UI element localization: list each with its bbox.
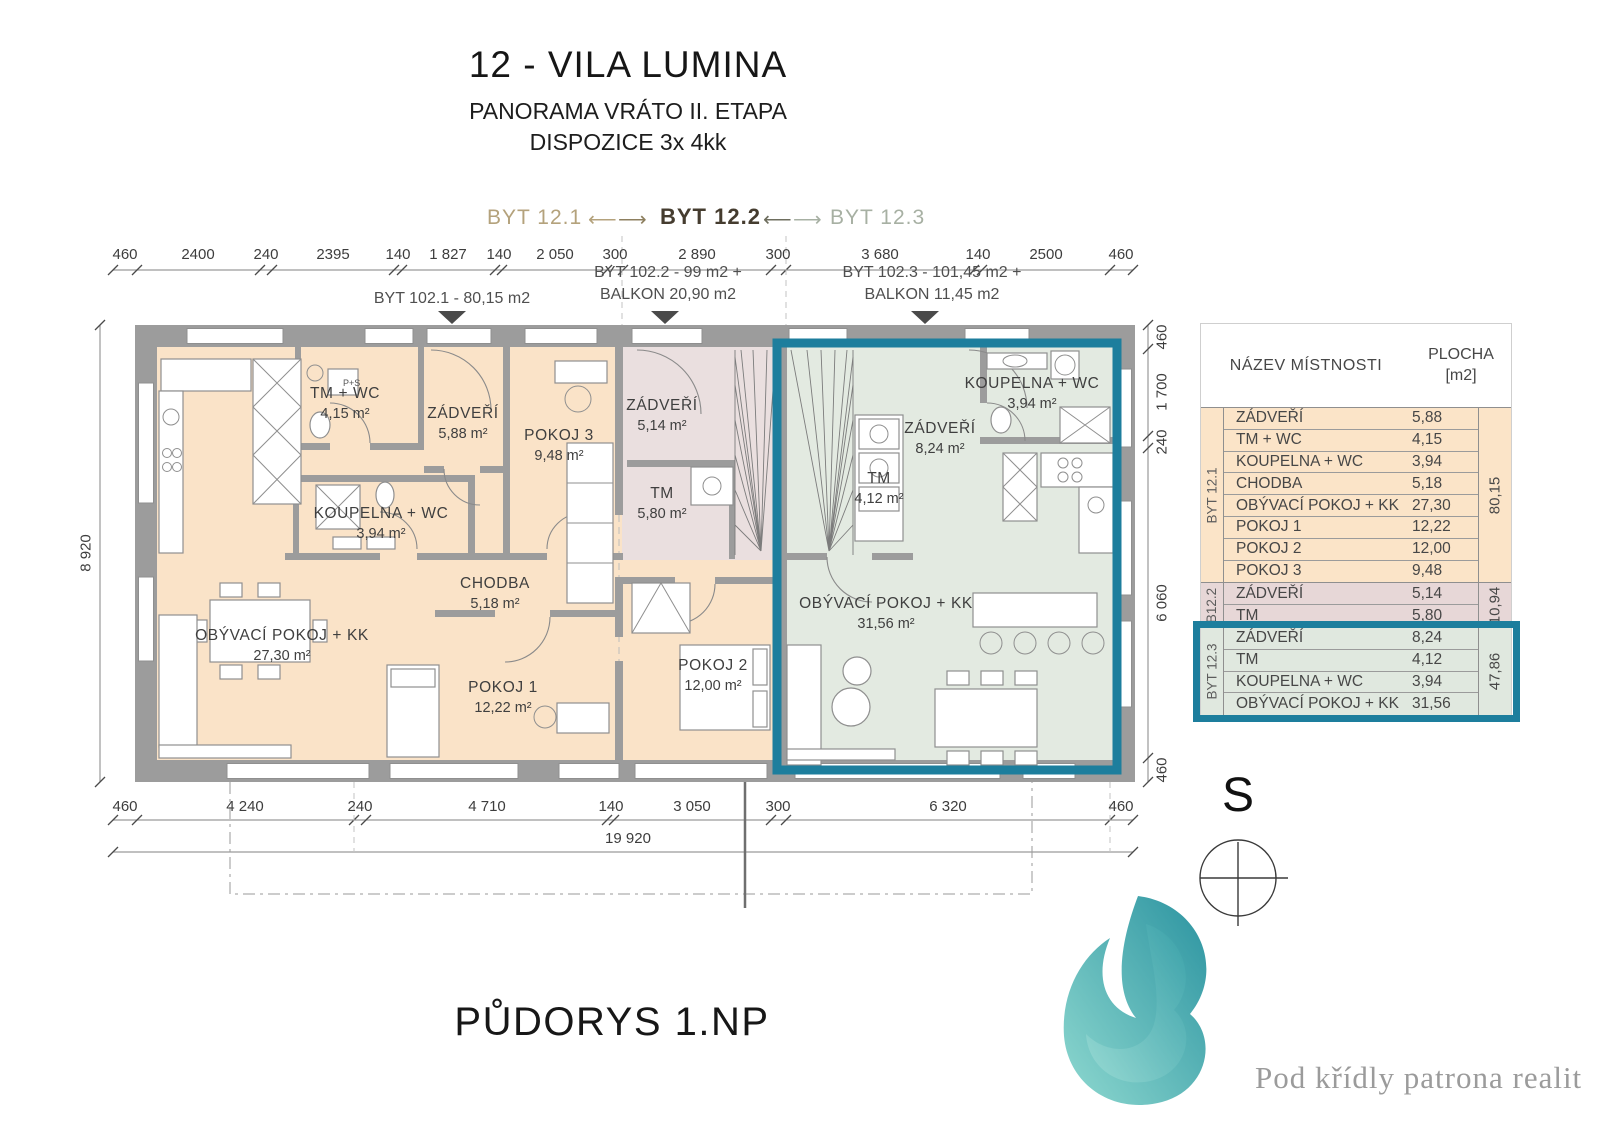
agency-tagline: Pod křídly patrona realit [1255, 1060, 1582, 1096]
room-label-tm-3: TM4,12 m² [854, 468, 903, 510]
dimension-label: 4 710 [468, 798, 506, 815]
page-disposition: DISPOZICE 3x 4kk [0, 129, 1256, 156]
unit-label-12-2: BYT 12.2 [660, 204, 761, 230]
dimension-label: 1 827 [429, 246, 467, 263]
table-header-name: NÁZEV MÍSTNOSTI [1201, 324, 1411, 407]
room-label-zadveri-2: ZÁDVEŘÍ5,14 m² [626, 395, 697, 437]
arrow-left-icon: ⟵ [588, 207, 617, 232]
arrow-right-icon: ⟶ [618, 207, 647, 232]
table-row: ZÁDVEŘÍ5,14 [1224, 583, 1478, 605]
table-row: ZÁDVEŘÍ8,24 [1224, 628, 1478, 650]
table-row: OBÝVACÍ POKOJ + KK31,56 [1224, 693, 1478, 715]
dimension-label: 2 890 [678, 246, 716, 263]
table-row: POKOJ 112,22 [1224, 517, 1478, 539]
table-group-b12-2: B12.2 ZÁDVEŘÍ5,14 TM5,80 10,94 [1201, 583, 1511, 628]
table-row: OBÝVACÍ POKOJ + KK27,30 [1224, 495, 1478, 517]
dimension-label: 460 [1154, 757, 1171, 782]
dimension-label: 2400 [181, 246, 214, 263]
floorplan-drawing: P+S TM + WC4,15 m² ZÁDVEŘÍ5,88 m² POKOJ … [135, 325, 1135, 782]
dimension-total-label: 19 920 [605, 830, 651, 847]
table-row: CHODBA5,18 [1224, 473, 1478, 495]
room-label-zadveri-3: ZÁDVEŘÍ8,24 m² [904, 418, 975, 460]
table-row: KOUPELNA + WC3,94 [1224, 452, 1478, 474]
dimension-label: 460 [1108, 246, 1133, 263]
room-label-pokoj-1: POKOJ 112,22 m² [468, 677, 538, 719]
dimension-label: 240 [253, 246, 278, 263]
table-row: ZÁDVEŘÍ5,88 [1224, 408, 1478, 430]
dimension-label: 1 700 [1154, 373, 1171, 411]
dimension-label: 460 [1154, 324, 1171, 349]
dimension-label: 300 [602, 246, 627, 263]
dimension-label: 460 [1108, 798, 1133, 815]
header: 12 - VILA LUMINA PANORAMA VRÁTO II. ETAP… [0, 44, 1256, 156]
group-tab: B12.2 [1201, 583, 1224, 627]
table-row: KOUPELNA + WC3,94 [1224, 672, 1478, 694]
room-label-chodba: CHODBA5,18 m² [460, 573, 530, 615]
unit-label-12-1: BYT 12.1 [487, 206, 582, 230]
entry-arrow-icon [651, 311, 679, 324]
entry-arrow-icon [438, 311, 466, 324]
unit-label-12-3: BYT 12.3 [830, 206, 925, 230]
page-subtitle: PANORAMA VRÁTO II. ETAPA [0, 98, 1256, 125]
room-label-obyvaci-1: OBÝVACÍ POKOJ + KK27,30 m² [195, 625, 369, 667]
dimension-label: 240 [347, 798, 372, 815]
dimension-label: 460 [112, 246, 137, 263]
room-label-tm-2: TM5,80 m² [637, 483, 686, 525]
dimension-label: 240 [1154, 429, 1171, 454]
dimension-label: 140 [385, 246, 410, 263]
dimension-label: 140 [965, 246, 990, 263]
table-row: TM5,80 [1224, 605, 1478, 627]
entry-arrow-icon [911, 311, 939, 324]
floorplan-sheet: 12 - VILA LUMINA PANORAMA VRÁTO II. ETAP… [0, 0, 1600, 1131]
group-total: 80,15 [1478, 408, 1511, 582]
room-label-obyvaci-3: OBÝVACÍ POKOJ + KK31,56 m² [799, 593, 973, 635]
room-area-table: NÁZEV MÍSTNOSTI PLOCHA [m2] BYT 12.1 ZÁD… [1200, 323, 1512, 717]
dimension-label: 2 050 [536, 246, 574, 263]
table-row: POKOJ 39,48 [1224, 561, 1478, 583]
dimension-total-label: 8 920 [78, 534, 95, 572]
room-label-koupelna-3: KOUPELNA + WC3,94 m² [965, 373, 1100, 415]
room-label-tm-wc: TM + WC4,15 m² [310, 383, 380, 425]
group-total: 10,94 [1478, 583, 1511, 627]
room-label-koupelna-1: KOUPELNA + WC3,94 m² [314, 503, 449, 545]
plan-level-title: PŮDORYS 1.NP [454, 1000, 769, 1045]
dimension-label: 300 [765, 246, 790, 263]
table-group-byt-12-3: BYT 12.3 ZÁDVEŘÍ8,24 TM4,12 KOUPELNA + W… [1201, 628, 1511, 716]
dimension-label: 6 060 [1154, 584, 1171, 622]
group-tab: BYT 12.1 [1201, 408, 1224, 582]
page-title: 12 - VILA LUMINA [0, 44, 1256, 86]
compass-north-label: S [1222, 768, 1254, 823]
dimension-label: 2500 [1029, 246, 1062, 263]
group-total: 47,86 [1478, 628, 1511, 715]
table-row: TM4,12 [1224, 650, 1478, 672]
dimension-label: 2395 [316, 246, 349, 263]
group-tab: BYT 12.3 [1201, 628, 1224, 715]
table-header-area: PLOCHA [m2] [1411, 324, 1511, 407]
dimension-label: 6 320 [929, 798, 967, 815]
dimension-label: 3 050 [673, 798, 711, 815]
table-group-byt-12-1: BYT 12.1 ZÁDVEŘÍ5,88 TM + WC4,15 KOUPELN… [1201, 408, 1511, 583]
room-label-zadveri-1: ZÁDVEŘÍ5,88 m² [427, 403, 498, 445]
room-label-pokoj-2: POKOJ 212,00 m² [678, 655, 748, 697]
table-row: POKOJ 212,00 [1224, 539, 1478, 561]
room-label-pokoj-3: POKOJ 39,48 m² [524, 425, 594, 467]
table-header: NÁZEV MÍSTNOSTI PLOCHA [m2] [1201, 324, 1511, 408]
table-row: TM + WC4,15 [1224, 430, 1478, 452]
arrow-left-icon: ⟵ [763, 207, 792, 232]
dimension-label: 140 [598, 798, 623, 815]
arrow-right-icon: ⟶ [793, 207, 822, 232]
dimension-label: 4 240 [226, 798, 264, 815]
callout-byt-102-2: BYT 102.2 - 99 m2 + BALKON 20,90 m2 [594, 262, 742, 306]
dimension-label: 460 [112, 798, 137, 815]
dimension-label: 3 680 [861, 246, 899, 263]
dimension-label: 300 [765, 798, 790, 815]
callout-byt-102-3: BYT 102.3 - 101,45 m2 + BALKON 11,45 m2 [843, 262, 1022, 306]
callout-byt-102-1: BYT 102.1 - 80,15 m2 [374, 288, 530, 310]
agency-logo-icon [1050, 890, 1225, 1120]
dimension-label: 140 [486, 246, 511, 263]
